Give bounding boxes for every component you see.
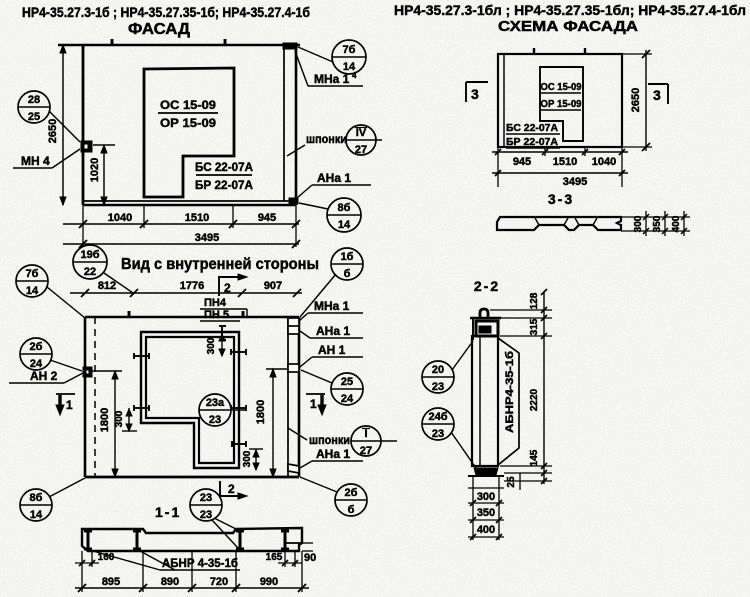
svg-text:ПН 5: ПН 5 (204, 309, 229, 321)
svg-text:2б: 2б (30, 341, 43, 353)
svg-text:2б: 2б (345, 487, 358, 499)
svg-text:8б: 8б (30, 492, 43, 504)
svg-text:БС 22-07А: БС 22-07А (506, 122, 558, 134)
svg-text:1: 1 (310, 397, 317, 411)
svg-text:СХЕМА ФАСАДА: СХЕМА ФАСАДА (498, 19, 639, 35)
svg-text:1040: 1040 (592, 156, 616, 168)
svg-text:300: 300 (242, 450, 253, 467)
svg-text:812: 812 (98, 280, 116, 292)
svg-text:1040: 1040 (108, 212, 132, 224)
svg-text:25: 25 (28, 111, 40, 123)
svg-text:895: 895 (102, 576, 120, 588)
svg-text:шпонки: шпонки (306, 132, 347, 146)
svg-text:25: 25 (506, 476, 517, 488)
svg-text:Вид с внутренней стороны: Вид с внутренней стороны (121, 256, 319, 273)
svg-text:НР4-35.27.3-1б ; НР4-35.27.35: НР4-35.27.3-1б ; НР4-35.27.35-1б; НР4-35… (22, 4, 310, 20)
svg-text:24б: 24б (428, 411, 447, 423)
svg-text:2650: 2650 (630, 88, 642, 112)
svg-text:1510: 1510 (553, 156, 577, 168)
svg-text:22: 22 (84, 266, 96, 278)
svg-text:1510: 1510 (185, 212, 209, 224)
svg-text:160: 160 (98, 552, 115, 563)
svg-text:145: 145 (529, 449, 540, 466)
svg-text:24: 24 (341, 393, 354, 405)
svg-text:27: 27 (360, 445, 372, 457)
svg-text:400: 400 (477, 524, 495, 536)
svg-text:НР4-35.27.3-1бл ; НР4-35.27.3: НР4-35.27.3-1бл ; НР4-35.27.35-1бл; НР4-… (394, 2, 746, 18)
svg-text:2-2: 2-2 (474, 278, 500, 294)
svg-text:90: 90 (304, 552, 316, 564)
svg-text:300: 300 (477, 491, 495, 503)
svg-text:3: 3 (471, 86, 479, 102)
svg-text:2: 2 (228, 482, 235, 496)
svg-text:ФАСАД: ФАСАД (128, 21, 190, 38)
svg-text:315: 315 (529, 318, 540, 335)
svg-text:1800: 1800 (255, 400, 267, 424)
svg-text:2: 2 (224, 281, 231, 295)
svg-text:1-1: 1-1 (155, 504, 181, 520)
svg-text:ОР 15-09: ОР 15-09 (160, 116, 216, 130)
svg-text:23: 23 (432, 428, 444, 440)
svg-text:б: б (348, 504, 355, 516)
svg-text:МНа 1: МНа 1 (314, 72, 350, 86)
svg-text:АНа 1: АНа 1 (316, 324, 350, 338)
svg-text:1б: 1б (341, 251, 354, 263)
svg-text:3495: 3495 (563, 176, 587, 188)
svg-text:300: 300 (633, 215, 644, 232)
svg-text:23: 23 (200, 509, 212, 521)
svg-text:БС 22-07А: БС 22-07А (195, 160, 253, 174)
svg-text:IV: IV (356, 127, 367, 139)
svg-text:14: 14 (30, 509, 43, 521)
svg-text:ПН4: ПН4 (204, 297, 227, 309)
svg-text:АНа 1: АНа 1 (316, 447, 350, 461)
svg-text:945: 945 (513, 156, 531, 168)
svg-text:23: 23 (209, 414, 221, 426)
svg-text:2220: 2220 (529, 388, 540, 411)
svg-text:ОС 15-09: ОС 15-09 (541, 81, 582, 93)
svg-text:27: 27 (355, 144, 367, 156)
svg-text:1020: 1020 (89, 158, 101, 182)
svg-text:350: 350 (477, 507, 495, 519)
svg-text:128: 128 (529, 292, 540, 309)
svg-text:АНа 1: АНа 1 (317, 171, 351, 185)
svg-text:945: 945 (258, 212, 276, 224)
svg-text:23а: 23а (206, 397, 225, 409)
svg-text:350: 350 (652, 215, 663, 232)
svg-text:14: 14 (338, 219, 351, 231)
svg-text:2650: 2650 (47, 119, 59, 143)
svg-text:300: 300 (206, 337, 217, 354)
svg-text:1800: 1800 (99, 408, 111, 432)
svg-text:АБНР4-35-1б: АБНР4-35-1б (504, 351, 516, 433)
svg-text:1776: 1776 (180, 280, 204, 292)
svg-text:4: 4 (352, 71, 357, 80)
svg-text:МНа 1: МНа 1 (314, 299, 350, 313)
svg-text:165: 165 (266, 552, 283, 563)
svg-text:БР 22-07А: БР 22-07А (506, 136, 558, 148)
svg-text:б: б (344, 268, 351, 280)
svg-text:3-3: 3-3 (548, 191, 574, 207)
svg-text:АБНР 4-35-1б: АБНР 4-35-1б (162, 556, 238, 570)
svg-text:БР 22-07А: БР 22-07А (195, 178, 253, 192)
svg-text:I: I (364, 428, 367, 440)
svg-text:7б: 7б (343, 44, 356, 56)
svg-text:23: 23 (200, 492, 212, 504)
svg-text:720: 720 (210, 576, 228, 588)
svg-text:3495: 3495 (195, 232, 219, 244)
svg-text:28: 28 (28, 94, 40, 106)
svg-text:8б: 8б (338, 202, 351, 214)
svg-text:шпонки: шпонки (309, 433, 350, 447)
svg-text:3: 3 (653, 87, 661, 103)
svg-text:АН 2: АН 2 (30, 369, 58, 383)
svg-text:20: 20 (432, 364, 444, 376)
svg-text:890: 890 (161, 576, 179, 588)
svg-text:990: 990 (260, 576, 278, 588)
svg-text:23: 23 (432, 381, 444, 393)
svg-text:7б: 7б (26, 268, 39, 280)
svg-text:14: 14 (26, 285, 39, 297)
svg-text:400: 400 (671, 215, 682, 232)
svg-text:ОС 15-09: ОС 15-09 (160, 98, 216, 112)
svg-text:ОР 15-09: ОР 15-09 (541, 98, 582, 110)
svg-text:МН 4: МН 4 (21, 154, 50, 168)
svg-text:25: 25 (341, 376, 353, 388)
svg-text:19б: 19б (80, 249, 99, 261)
svg-text:АН 1: АН 1 (318, 343, 346, 357)
svg-text:907: 907 (264, 280, 282, 292)
svg-text:1: 1 (66, 398, 73, 412)
